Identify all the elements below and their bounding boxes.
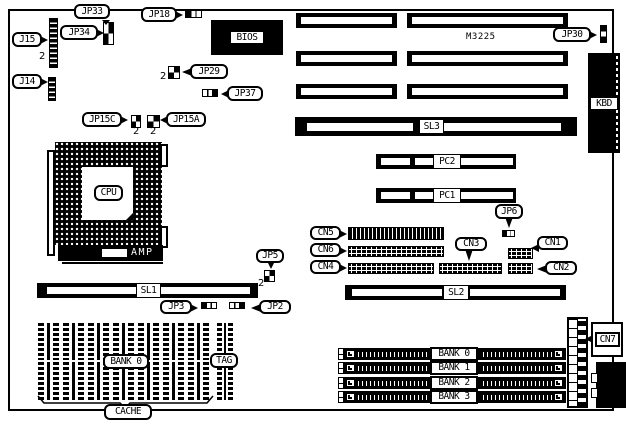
simm-contacts (483, 352, 553, 357)
chipset-label: M3225 (466, 33, 496, 42)
pointer (339, 247, 347, 255)
label-jp3: JP3 (160, 300, 192, 314)
pc2-label: PC2 (433, 154, 461, 169)
conn-cn2 (508, 263, 533, 274)
slot-stripe (415, 192, 433, 199)
label-cn1: CN1 (537, 236, 568, 250)
simm-clip (554, 350, 563, 358)
jumper-jp33-jp34 (103, 22, 114, 45)
conn-cn6 (348, 246, 444, 257)
socket-clip-top (160, 144, 168, 167)
cn7-label: CN7 (595, 332, 620, 347)
tag-label: TAG (210, 353, 238, 368)
slot-stripe (161, 287, 250, 294)
slot-stripe (307, 123, 413, 131)
pointer (96, 29, 104, 37)
pointer (537, 265, 547, 273)
label-jp29: JP29 (190, 64, 228, 79)
amp-label: AMP (131, 248, 154, 258)
pointer (120, 116, 128, 124)
simm-clip (554, 393, 563, 401)
label-cn4: CN4 (310, 260, 341, 274)
cpu-pin1-notch (126, 213, 133, 220)
sl2-label: SL2 (443, 285, 469, 300)
cache-chip (38, 323, 59, 360)
simm-contacts (358, 366, 430, 371)
slot-stripe (415, 158, 433, 165)
isa-slot-2 (407, 13, 568, 28)
conn-cn5 (348, 227, 444, 240)
label-jp34: JP34 (60, 25, 98, 40)
pin2-mark-jp15c: 2 (133, 127, 139, 137)
isa-slot-4 (407, 51, 568, 66)
ps-tab (591, 388, 598, 398)
pointer (339, 230, 347, 238)
cache-bank-label: BANK 0 (103, 354, 149, 369)
sl3-label: SL3 (419, 119, 444, 134)
header-j15 (49, 18, 58, 68)
slot-stripe (461, 158, 513, 165)
pointer (221, 90, 229, 98)
slot-stripe (301, 55, 392, 62)
simm-clip (554, 379, 563, 387)
slot-stripe (443, 123, 561, 131)
jumper-jp5 (264, 270, 275, 282)
motherboard-diagram: 2 JP33 JP34 J15 J14 JP18 2 JP29 JP37 JP1… (0, 0, 626, 424)
pointer (267, 261, 275, 269)
isa-slot-6 (407, 84, 568, 99)
pin2-mark-jp15a: 2 (150, 127, 156, 137)
label-j15: J15 (12, 32, 42, 47)
pointer (339, 264, 347, 272)
conn-cn4 (348, 263, 434, 274)
ps-tab (591, 373, 598, 383)
jumper-jp2 (229, 302, 245, 309)
simm-contacts (358, 352, 430, 357)
label-cn5: CN5 (310, 226, 341, 240)
label-jp6: JP6 (495, 204, 523, 219)
slot-stripe (301, 88, 392, 95)
kbd-label: KBD (590, 97, 618, 110)
pointer (182, 68, 192, 76)
pointer (175, 11, 183, 19)
jumper-jp30 (600, 25, 607, 43)
slot-stripe (47, 287, 136, 294)
simm-contacts (358, 381, 430, 386)
pointer (102, 20, 110, 25)
power-connector (567, 317, 588, 408)
jumper-jp6 (502, 230, 515, 237)
label-jp37: JP37 (227, 86, 263, 101)
pointer (531, 244, 539, 252)
simm-contacts (483, 366, 553, 371)
slot-stripe (352, 289, 442, 296)
label-cn6: CN6 (310, 243, 341, 257)
pc1-label: PC1 (433, 188, 461, 203)
cache-chip (188, 323, 209, 360)
label-jp18: JP18 (141, 7, 177, 22)
simm-contacts (483, 381, 553, 386)
simm-contacts (358, 395, 430, 400)
pointer (40, 36, 48, 44)
simm-clip (346, 379, 355, 387)
jumper-jp37 (202, 89, 218, 97)
isa-slot-3 (296, 51, 397, 66)
slot-stripe (381, 158, 410, 165)
slot-stripe (461, 192, 513, 199)
pointer (505, 217, 513, 228)
simm-clip (346, 364, 355, 372)
isa-slot-5 (296, 84, 397, 99)
pointer (160, 116, 168, 124)
label-cn3: CN3 (455, 237, 487, 251)
cache-chip (163, 323, 184, 360)
pin2-mark-jp29: 2 (160, 72, 166, 82)
label-jp2: JP2 (259, 300, 291, 314)
jumper-jp3 (201, 302, 217, 309)
ps-connector (596, 362, 626, 408)
cache-chip (63, 323, 84, 360)
bios-label: BIOS (230, 31, 264, 44)
simm-clip (346, 393, 355, 401)
pointer (465, 249, 473, 261)
slot-stripe (412, 55, 563, 62)
sl1-label: SL1 (136, 283, 161, 298)
amp-window (102, 249, 127, 257)
label-jp5: JP5 (256, 249, 284, 263)
slot-stripe (301, 17, 392, 24)
label-j14: J14 (12, 74, 42, 89)
pin2-mark-jp5: 2 (258, 279, 264, 289)
isa-slot-1 (296, 13, 397, 28)
pointer (40, 78, 48, 86)
pointer (190, 304, 198, 312)
vrm-bar (47, 150, 55, 256)
pin2-mark-j15: 2 (39, 52, 45, 62)
slot-stripe (470, 289, 560, 296)
pointer (589, 31, 597, 39)
label-jp30: JP30 (553, 27, 591, 42)
amp-bar: AMP (58, 245, 163, 261)
simm-contacts (483, 395, 553, 400)
pointer (251, 304, 261, 312)
bank0-label: BANK 0 (430, 347, 478, 361)
pointer (585, 335, 593, 343)
label-jp33: JP33 (74, 4, 110, 19)
header-j14 (48, 77, 56, 101)
conn-cn1 (508, 248, 533, 259)
cache-label: CACHE (104, 404, 152, 420)
jumper-jp29 (168, 66, 180, 79)
cpu-label: CPU (94, 185, 123, 201)
simm-clip (554, 364, 563, 372)
jumper-jp18 (185, 10, 202, 18)
label-jp15c: JP15C (82, 112, 122, 127)
simm-clip (346, 350, 355, 358)
amp-shadow (62, 262, 163, 264)
slot-stripe (412, 17, 563, 24)
bank3-label: BANK 3 (430, 390, 478, 404)
label-cn2: CN2 (545, 261, 577, 275)
slot-stripe (412, 88, 563, 95)
bank1-label: BANK 1 (430, 361, 478, 375)
bank2-label: BANK 2 (430, 376, 478, 390)
slot-stripe (381, 192, 410, 199)
label-jp15a: JP15A (166, 112, 206, 127)
conn-cn3 (439, 263, 502, 274)
